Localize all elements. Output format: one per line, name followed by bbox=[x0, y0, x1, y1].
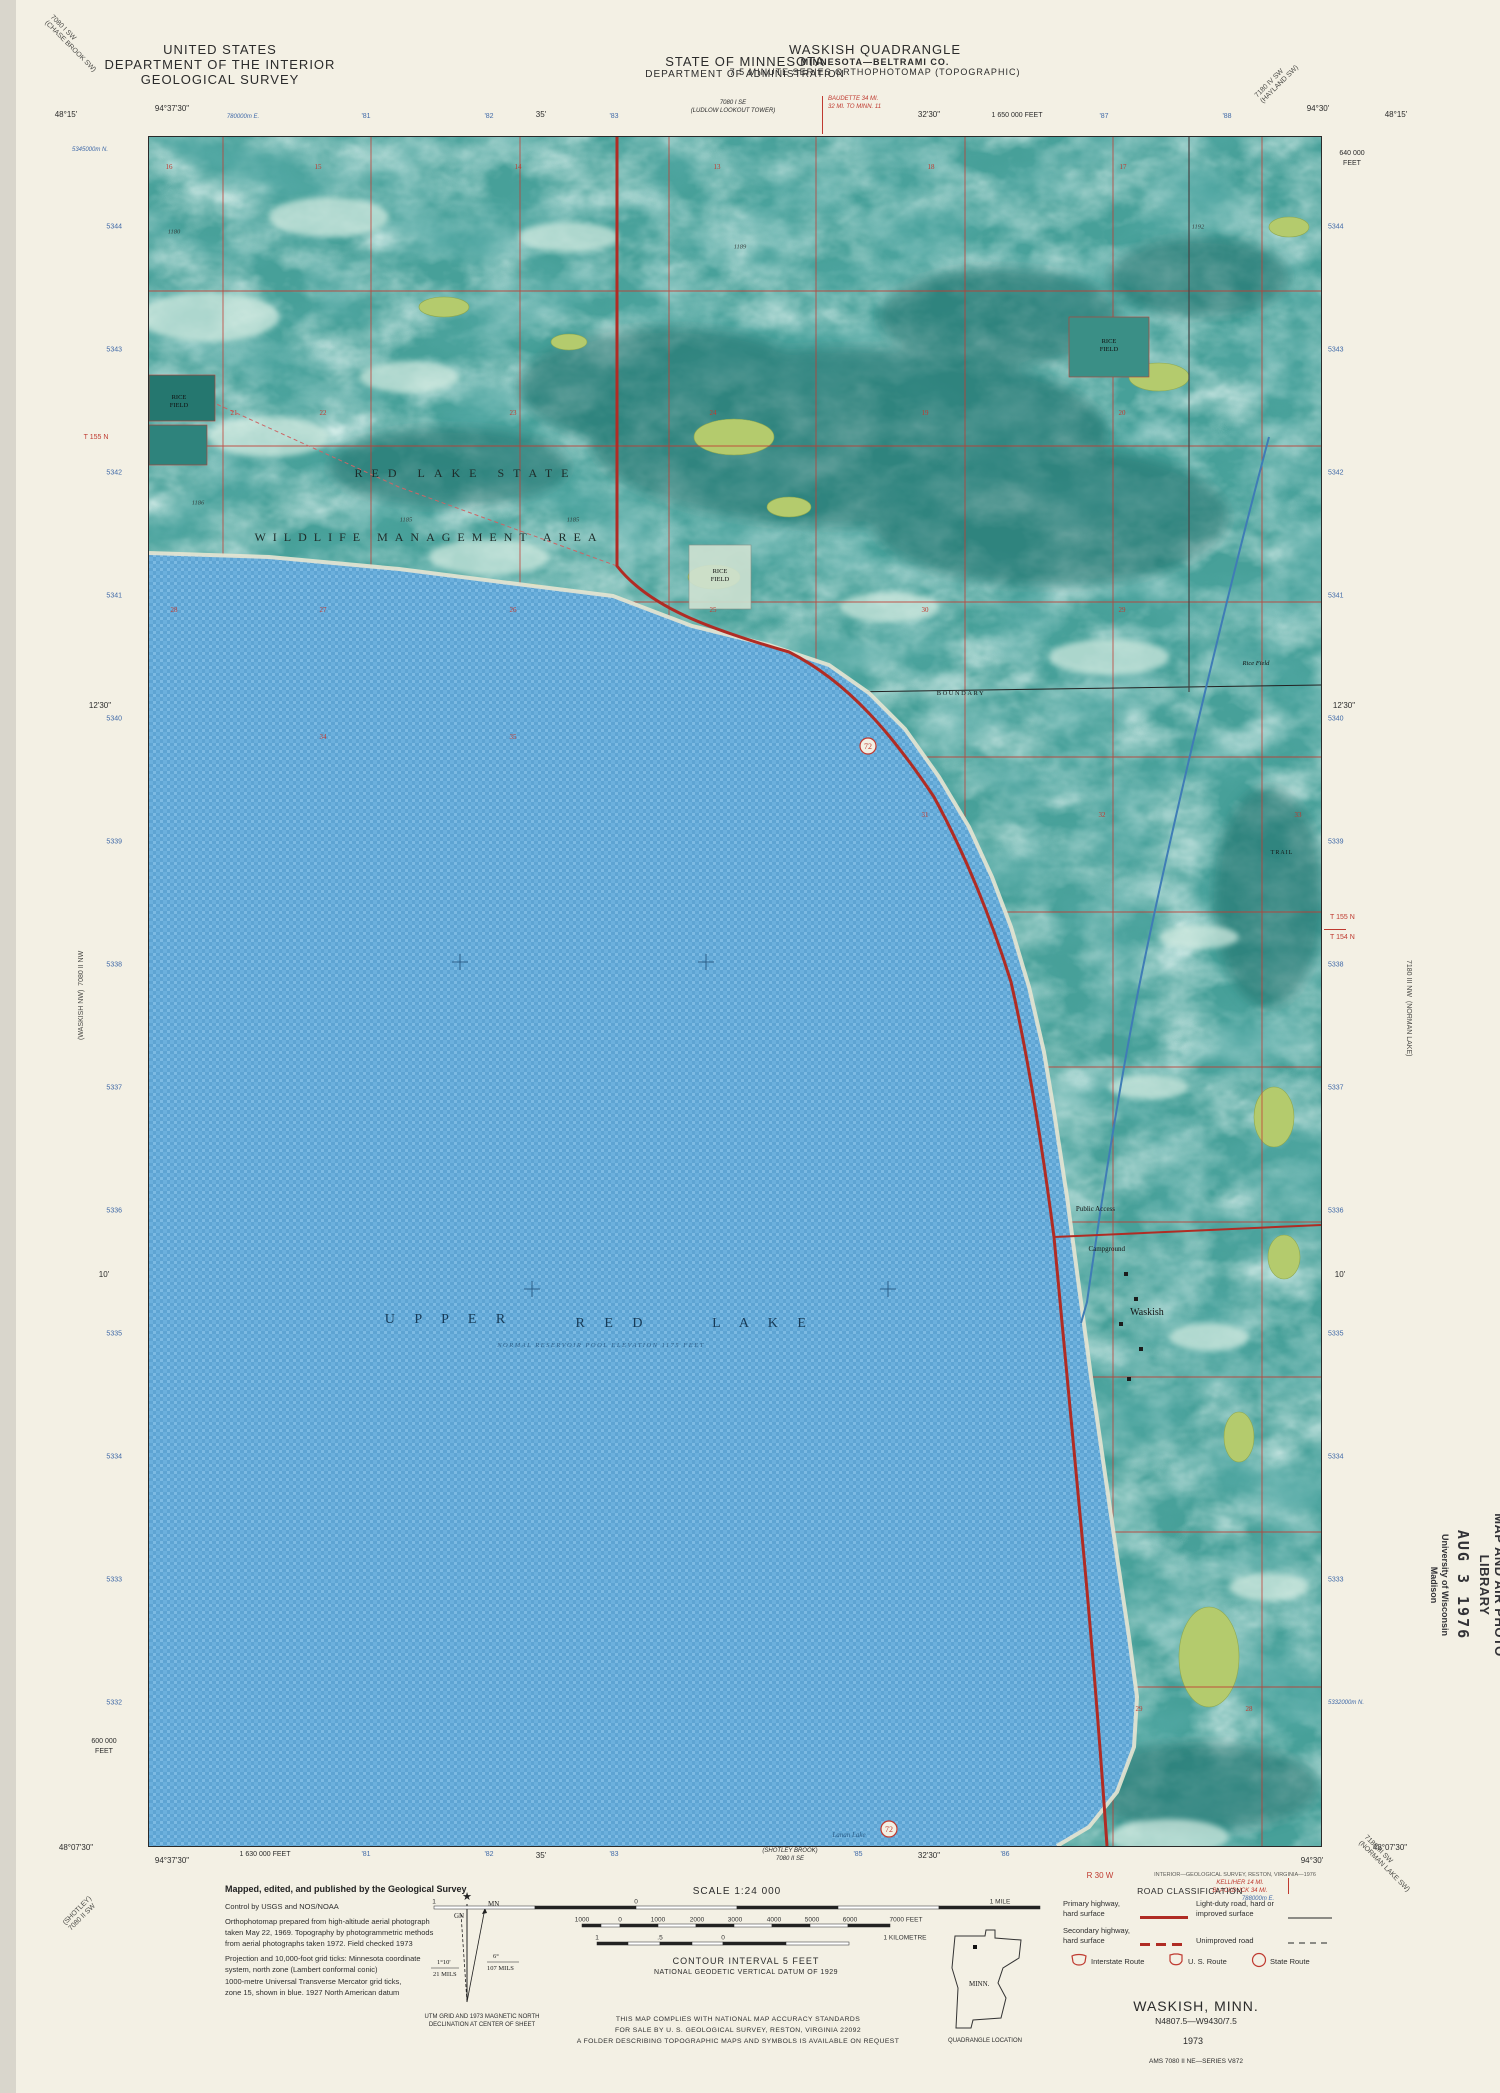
top-feet-label: 1 650 000 FEET bbox=[992, 112, 1043, 119]
left-utm-number-0: 5344 bbox=[106, 224, 122, 231]
section-number-0: 28 bbox=[171, 606, 178, 614]
route-arrow-icon bbox=[822, 96, 823, 134]
scale-feet-label-1: 0 bbox=[618, 1917, 622, 1924]
agency-line3: GEOLOGICAL SURVEY bbox=[60, 72, 380, 87]
left-feet-unit: FEET bbox=[95, 1748, 113, 1755]
agency-line1: UNITED STATES bbox=[60, 42, 380, 57]
agency-block: UNITED STATES DEPARTMENT OF THE INTERIOR… bbox=[60, 42, 380, 87]
section-number-2: 26 bbox=[510, 606, 517, 614]
state-abbrev: MINN. bbox=[969, 1980, 990, 1988]
declination-note-2: DECLINATION AT CENTER OF SHEET bbox=[429, 2022, 535, 2028]
bottom-lon-right: 94°30' bbox=[1301, 1856, 1324, 1865]
left-utm-number-1: 5343 bbox=[106, 347, 122, 354]
left-utm-number-3: 5341 bbox=[106, 593, 122, 600]
map-overlay: 1615141318172122232419202827262530293435… bbox=[149, 137, 1321, 1846]
credits-line-3: from aerial photographs taken 1972. Fiel… bbox=[225, 1939, 413, 1948]
top-adjoining-name: (LUDLOW LOOKOUT TOWER) bbox=[691, 108, 776, 114]
scale-km-label-3: 1 KILOMETRE bbox=[884, 1935, 927, 1942]
top-lon-35: 35' bbox=[536, 110, 546, 119]
scale-feet-label-8: 7000 FEET bbox=[890, 1917, 923, 1924]
top-lat-left: 48°15' bbox=[55, 110, 78, 119]
section-number-4: 19 bbox=[922, 409, 929, 417]
bottom-utm-81: '81 bbox=[361, 1851, 370, 1858]
credits-line-6: 1000-metre Universal Transverse Mercator… bbox=[225, 1977, 401, 1986]
quad-state-county: MINNESOTA—BELTRAMI CO. bbox=[665, 57, 1085, 67]
top-destination-1: BAUDETTE 34 MI. bbox=[828, 96, 878, 102]
section-number-3: 13 bbox=[714, 163, 721, 171]
township-divider bbox=[1324, 929, 1346, 930]
interstate-shield-icon bbox=[1070, 1952, 1088, 1968]
scale-feet-label-0: 1000 bbox=[575, 1917, 589, 1924]
secondary-highway-sample bbox=[1140, 1943, 1188, 1946]
top-utm-easting: 780000m E. bbox=[227, 114, 259, 120]
section-number-0: 29 bbox=[1136, 1705, 1143, 1713]
right-utm-number-10: 5334 bbox=[1328, 1454, 1344, 1461]
road-primary-label: Primary highway, hard surface bbox=[1063, 1899, 1120, 1919]
agency-line2: DEPARTMENT OF THE INTERIOR bbox=[60, 57, 380, 72]
top-utm-88: '88 bbox=[1222, 113, 1231, 120]
scale-mile-label-1: 0 bbox=[634, 1899, 638, 1906]
right-utm-number-5: 5339 bbox=[1328, 839, 1344, 846]
left-utm-northing: 5345000m N. bbox=[72, 147, 108, 153]
map-sheet: 7080 I SW (CHASE BROOK SW) UNITED STATES… bbox=[0, 0, 1500, 2093]
section-number-1: 35 bbox=[510, 733, 517, 741]
left-utm-number-5: 5339 bbox=[106, 839, 122, 846]
stamp-org1: University of Wisconsin bbox=[1439, 1475, 1450, 1695]
credits-line-0: Control by USGS and NOS/NOAA bbox=[225, 1902, 339, 1911]
us-route-shield-icon bbox=[1168, 1952, 1184, 1968]
bottom-utm-83: '83 bbox=[609, 1851, 618, 1858]
elevation-value-1: 1186 bbox=[192, 500, 205, 507]
road-secondary-label: Secondary highway, hard surface bbox=[1063, 1926, 1130, 1946]
scale-title: SCALE 1:24 000 bbox=[693, 1886, 782, 1897]
left-utm-number-6: 5338 bbox=[106, 962, 122, 969]
right-lat-1230: 12'30" bbox=[1333, 701, 1355, 710]
section-number-1: 27 bbox=[320, 606, 327, 614]
left-utm-number-9: 5335 bbox=[106, 1331, 122, 1338]
scale-feet-label-7: 6000 bbox=[843, 1917, 857, 1924]
stamp-date: AUG 3 1976 bbox=[1454, 1475, 1472, 1695]
quad-title-block: WASKISH QUADRANGLE MINNESOTA—BELTRAMI CO… bbox=[665, 42, 1085, 77]
adjoining-quad-top-right: 7180 IV SW (HAYLAND SW) bbox=[1254, 59, 1301, 106]
gn-angle: 1°10' bbox=[437, 1959, 451, 1966]
right-utm-number-4: 5340 bbox=[1328, 716, 1344, 723]
sheet-series: AMS 7080 II NE—SERIES V872 bbox=[1149, 2058, 1243, 2065]
quad-name: WASKISH QUADRANGLE bbox=[665, 42, 1085, 57]
section-number-4: 18 bbox=[928, 163, 935, 171]
adjoining-quad-left: (WASKISH NW) 7080 II NW bbox=[78, 951, 86, 1040]
credits-line-7: zone 15, shown in blue. 1927 North Ameri… bbox=[225, 1988, 399, 1997]
credits-line-2: taken May 22, 1969. Topography by photog… bbox=[225, 1928, 433, 1937]
section-number-5: 17 bbox=[1120, 163, 1127, 171]
credits-line-5: system, north zone (Lambert conformal co… bbox=[225, 1965, 378, 1974]
scale-mile-label-2: 1 MILE bbox=[990, 1899, 1011, 1906]
top-utm-83: '83 bbox=[609, 113, 618, 120]
unimproved-road-sample bbox=[1288, 1942, 1332, 1944]
section-number-2: 23 bbox=[510, 409, 517, 417]
road-unimproved-label: Unimproved road bbox=[1196, 1936, 1254, 1946]
section-number-0: 34 bbox=[320, 733, 327, 741]
left-utm-number-2: 5342 bbox=[106, 470, 122, 477]
scale-mile-label-0: 1 bbox=[432, 1899, 436, 1906]
bottom-feet-label: 1 630 000 FEET bbox=[240, 1851, 291, 1858]
vertical-datum: NATIONAL GEODETIC VERTICAL DATUM OF 1929 bbox=[654, 1969, 838, 1976]
sheet-id: N4807.5—W9430/7.5 bbox=[1155, 2016, 1237, 2026]
right-utm-number-1: 5343 bbox=[1328, 347, 1344, 354]
section-number-1: 15 bbox=[315, 163, 322, 171]
credits-line-4: Projection and 10,000-foot grid ticks: M… bbox=[225, 1954, 421, 1963]
left-utm-number-4: 5340 bbox=[106, 716, 122, 723]
section-number-4: 30 bbox=[922, 606, 929, 614]
section-number-1: 28 bbox=[1246, 1705, 1253, 1713]
mn-mils: 107 MILS bbox=[487, 1965, 514, 1972]
scale-feet-label-3: 2000 bbox=[690, 1917, 704, 1924]
gn-mils: 21 MILS bbox=[433, 1971, 457, 1978]
road-lightduty-label: Light-duty road, hard or improved surfac… bbox=[1196, 1899, 1274, 1919]
primary-highway-sample bbox=[1140, 1916, 1188, 1919]
section-number-0: 31 bbox=[922, 811, 929, 819]
right-utm-number-7: 5337 bbox=[1328, 1085, 1344, 1092]
left-township-label: T 155 N bbox=[84, 434, 109, 441]
bottom-lat-left: 48°07'30" bbox=[59, 1843, 93, 1852]
interstate-route-label: Interstate Route bbox=[1091, 1957, 1144, 1967]
bottom-lon-35: 35' bbox=[536, 1851, 546, 1860]
bottom-credit-line: INTERIOR—GEOLOGICAL SURVEY, RESTON, VIRG… bbox=[1154, 1872, 1316, 1878]
elevation-value-5: 1192 bbox=[1192, 224, 1205, 231]
top-lat-right: 48°15' bbox=[1385, 110, 1408, 119]
quad-location-dot bbox=[973, 1945, 977, 1949]
stamp-org2: Madison bbox=[1428, 1475, 1439, 1695]
elevation-value-0: 1180 bbox=[168, 229, 181, 236]
declination-note-1: UTM GRID AND 1973 MAGNETIC NORTH bbox=[425, 2014, 540, 2020]
bottom-lat-right: 48°07'30" bbox=[1373, 1843, 1407, 1852]
us-route-label: U. S. Route bbox=[1188, 1957, 1227, 1967]
section-number-3: 25 bbox=[710, 606, 717, 614]
sheet-name: WASKISH, MINN. bbox=[1133, 1998, 1259, 2014]
section-number-2: 14 bbox=[515, 163, 522, 171]
scale-km-label-1: .5 bbox=[657, 1935, 662, 1942]
stamp-line1: MAP AND AIR PHOTO bbox=[1492, 1475, 1500, 1695]
top-lon-right: 94°30' bbox=[1307, 104, 1330, 113]
left-utm-number-10: 5334 bbox=[106, 1454, 122, 1461]
bottom-adjoining-name: (SHOTLEY BROOK) bbox=[762, 1848, 817, 1854]
bottom-range-label: R 30 W bbox=[1087, 1871, 1114, 1880]
route-arrow-icon bbox=[1288, 1878, 1289, 1894]
top-lon-left: 94°37'30" bbox=[155, 104, 189, 113]
mn-angle: 6° bbox=[493, 1953, 499, 1960]
bottom-lon-left: 94°37'30" bbox=[155, 1856, 189, 1865]
right-utm-number-2: 5342 bbox=[1328, 470, 1344, 477]
section-number-0: 21 bbox=[231, 409, 238, 417]
right-township-154: T 154 N bbox=[1330, 934, 1355, 941]
top-utm-81: '81 bbox=[361, 113, 370, 120]
scale-feet-label-5: 4000 bbox=[767, 1917, 781, 1924]
left-feet-value: 600 000 bbox=[91, 1738, 116, 1745]
road-class-title: ROAD CLASSIFICATION bbox=[1137, 1886, 1243, 1896]
bottom-lon-3230: 32'30" bbox=[918, 1851, 940, 1860]
scale-feet-label-6: 5000 bbox=[805, 1917, 819, 1924]
left-lat-10: 10' bbox=[99, 1270, 109, 1279]
right-utm-northing: 5332000m N. bbox=[1328, 1700, 1364, 1706]
scale-feet-label-4: 3000 bbox=[728, 1917, 742, 1924]
right-lat-10: 10' bbox=[1335, 1270, 1345, 1279]
section-number-1: 22 bbox=[320, 409, 327, 417]
accuracy-line-1: FOR SALE BY U. S. GEOLOGICAL SURVEY, RES… bbox=[615, 2027, 861, 2034]
left-utm-number-7: 5337 bbox=[106, 1085, 122, 1092]
right-utm-number-6: 5338 bbox=[1328, 962, 1344, 969]
lightduty-road-sample bbox=[1288, 1917, 1332, 1919]
elevation-value-4: 1189 bbox=[734, 244, 747, 251]
section-number-3: 24 bbox=[710, 409, 717, 417]
top-adjoining-number: 7080 I SE bbox=[720, 100, 746, 106]
right-utm-number-0: 5344 bbox=[1328, 224, 1344, 231]
bottom-utm-82: '82 bbox=[484, 1851, 493, 1858]
scale-feet-label-2: 1000 bbox=[651, 1917, 665, 1924]
map-body: 72 72 RED LAKE STATE WILDLIFE MANAGEMENT… bbox=[148, 136, 1322, 1847]
top-utm-87: '87 bbox=[1099, 113, 1108, 120]
section-number-1: 32 bbox=[1099, 811, 1106, 819]
left-utm-number-12: 5332 bbox=[106, 1700, 122, 1707]
left-utm-number-11: 5333 bbox=[106, 1577, 122, 1584]
right-feet-unit: FEET bbox=[1343, 160, 1361, 167]
adjoining-quad-bottom-left: (SHOTLEY) 7080 II SW bbox=[62, 1895, 100, 1933]
contour-interval: CONTOUR INTERVAL 5 FEET bbox=[673, 1956, 820, 1966]
right-utm-number-8: 5336 bbox=[1328, 1208, 1344, 1215]
section-number-0: 16 bbox=[166, 163, 173, 171]
left-utm-number-8: 5336 bbox=[106, 1208, 122, 1215]
top-destination-2: 32 MI. TO MINN. 11 bbox=[828, 104, 881, 110]
stamp-line2: LIBRARY bbox=[1477, 1475, 1492, 1695]
scan-edge bbox=[0, 0, 16, 2093]
state-route-circle-icon bbox=[1251, 1952, 1267, 1968]
bottom-adjoining-number: 7080 II SE bbox=[776, 1856, 804, 1862]
quad-series: 7.5 MINUTE SERIES ORTHOPHOTOMAP (TOPOGRA… bbox=[665, 67, 1085, 77]
accuracy-line-0: THIS MAP COMPLIES WITH NATIONAL MAP ACCU… bbox=[616, 2016, 860, 2023]
quad-location-caption: QUADRANGLE LOCATION bbox=[948, 2038, 1022, 2044]
accuracy-line-2: A FOLDER DESCRIBING TOPOGRAPHIC MAPS AND… bbox=[577, 2038, 900, 2045]
top-lon-3230: 32'30" bbox=[918, 110, 940, 119]
scale-km-label-2: 0 bbox=[721, 1935, 725, 1942]
section-number-5: 29 bbox=[1119, 606, 1126, 614]
elevation-value-2: 1185 bbox=[400, 517, 413, 524]
library-stamp: MAP AND AIR PHOTO LIBRARY AUG 3 1976 Uni… bbox=[1377, 1475, 1500, 1695]
bottom-utm-86: '86 bbox=[1000, 1851, 1009, 1858]
section-number-5: 20 bbox=[1119, 409, 1126, 417]
right-utm-number-11: 5333 bbox=[1328, 1577, 1344, 1584]
elevation-value-3: 1185 bbox=[567, 517, 580, 524]
adjoining-quad-right: 7180 III NW (NORMAN LAKE) bbox=[1404, 960, 1412, 1056]
state-route-label: State Route bbox=[1270, 1957, 1310, 1967]
right-utm-number-3: 5341 bbox=[1328, 593, 1344, 600]
state-locator-map: MINN. bbox=[943, 1928, 1028, 2033]
right-utm-number-9: 5335 bbox=[1328, 1331, 1344, 1338]
bottom-utm-85: '85 bbox=[853, 1851, 862, 1858]
sheet-year: 1973 bbox=[1183, 2036, 1203, 2046]
credits-line-1: Orthophotomap prepared from high-altitud… bbox=[225, 1917, 430, 1926]
top-utm-82: '82 bbox=[484, 113, 493, 120]
right-township-155: T 155 N bbox=[1330, 914, 1355, 921]
section-number-2: 33 bbox=[1295, 811, 1302, 819]
right-feet-value: 640 000 bbox=[1339, 150, 1364, 157]
left-lat-1230: 12'30" bbox=[89, 701, 111, 710]
scale-km-label-0: 1 bbox=[595, 1935, 599, 1942]
